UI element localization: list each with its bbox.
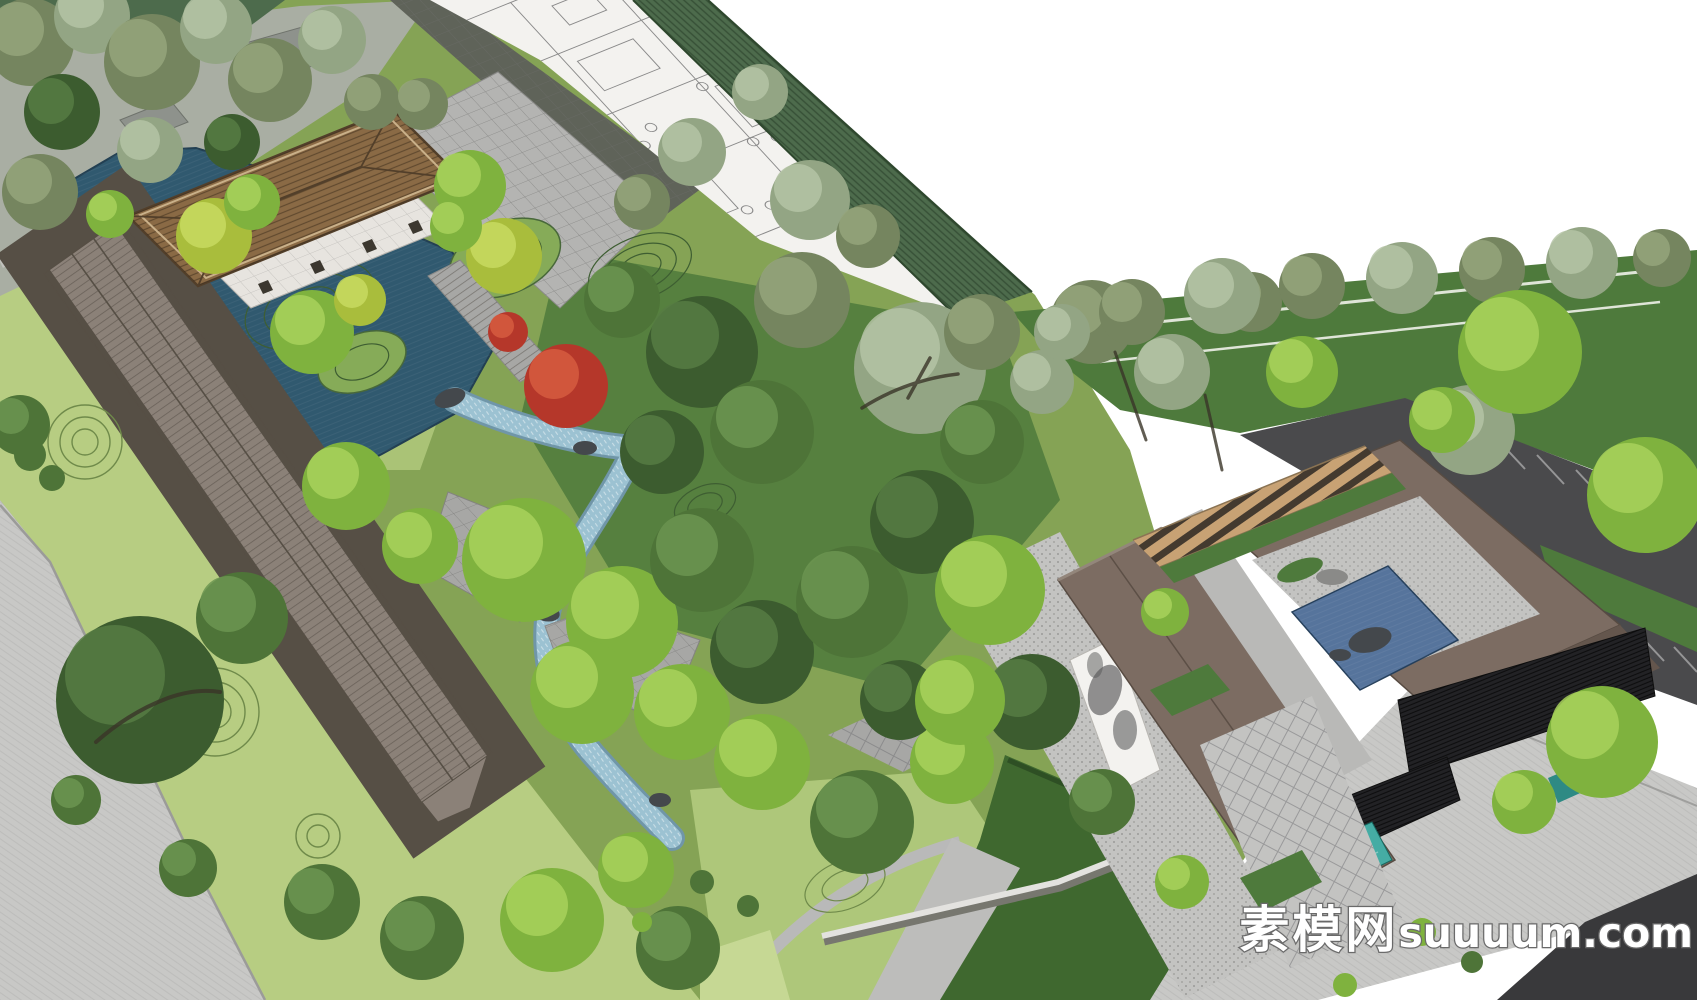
tree (2, 154, 78, 230)
tree (380, 896, 464, 980)
shrub (1333, 973, 1357, 997)
tree (754, 252, 850, 348)
tree (1134, 334, 1210, 410)
tree (810, 770, 914, 874)
tree (302, 442, 390, 530)
tree (117, 117, 183, 183)
tree (650, 508, 754, 612)
tree (462, 498, 586, 622)
tree (430, 200, 482, 252)
tree (598, 832, 674, 908)
shrub (14, 439, 46, 471)
red-maple-tree (488, 312, 528, 352)
tree (935, 535, 1045, 645)
tree (836, 204, 900, 268)
tree (344, 74, 400, 130)
tree (940, 400, 1024, 484)
tree (732, 64, 788, 120)
tree (944, 294, 1020, 370)
tree (1366, 242, 1438, 314)
tree (1099, 279, 1165, 345)
tree (228, 38, 312, 122)
tree (1546, 686, 1658, 798)
tree (634, 664, 730, 760)
tree (382, 508, 458, 584)
render-viewport: 素模网suuuum.com (0, 0, 1697, 1000)
watermark: 素模网suuuum.com (1239, 890, 1693, 962)
shrub (690, 870, 714, 894)
tree (530, 640, 634, 744)
tree (1458, 290, 1582, 414)
shrub (39, 465, 65, 491)
tree (159, 839, 217, 897)
shrub (632, 912, 652, 932)
tree (614, 174, 670, 230)
tree (1279, 253, 1345, 319)
tree (620, 410, 704, 494)
tree (658, 118, 726, 186)
tree (1633, 229, 1691, 287)
tree (51, 775, 101, 825)
watermark-brand-domain: suuuum.com (1398, 909, 1693, 957)
tree (298, 6, 366, 74)
tree (224, 174, 280, 230)
tree (710, 380, 814, 484)
landscape-3d-render (0, 0, 1697, 1000)
tree (915, 655, 1005, 745)
tree (1155, 855, 1209, 909)
watermark-brand-cn: 素模网 (1239, 901, 1398, 959)
red-maple-tree (524, 344, 608, 428)
tree (86, 190, 134, 238)
tree (24, 74, 100, 150)
tree (396, 78, 448, 130)
tree (284, 864, 360, 940)
tree (1034, 304, 1090, 360)
shrub (737, 895, 759, 917)
tree (334, 274, 386, 326)
tree (1492, 770, 1556, 834)
tree (1184, 258, 1260, 334)
tree (1266, 336, 1338, 408)
tree (1069, 769, 1135, 835)
tree (1546, 227, 1618, 299)
tree (1141, 588, 1189, 636)
tree (500, 868, 604, 972)
tree (1409, 387, 1475, 453)
tree (204, 114, 260, 170)
tree (714, 714, 810, 810)
tree (584, 262, 660, 338)
tree (56, 616, 224, 784)
tree (196, 572, 288, 664)
